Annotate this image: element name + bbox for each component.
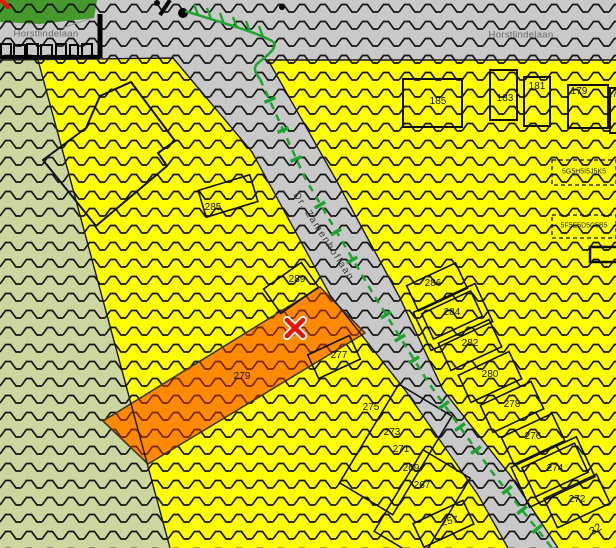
annotation-row2: 5F5E5D5C5B5 — [560, 223, 607, 230]
parcel-label-277: 277 — [331, 351, 348, 361]
parcel-label-282: 282 — [462, 339, 479, 349]
parcel-label-275: 275 — [363, 403, 380, 413]
map-canvas[interactable] — [0, 0, 616, 548]
parcel-label-181: 181 — [529, 82, 546, 92]
parcel-label-280: 280 — [482, 370, 499, 380]
parcel-label-289: 289 — [289, 275, 306, 285]
parcel-label-17x: 17 — [606, 90, 616, 100]
parcel-label-269: 269 — [403, 464, 420, 474]
parcel-label-278: 278 — [504, 400, 521, 410]
parcel-label-183: 183 — [497, 94, 514, 104]
parcel-label-273: 273 — [384, 428, 401, 438]
parcel-label-274: 274 — [547, 464, 564, 474]
tree-dot-icon — [279, 4, 285, 10]
parcel-label-284: 284 — [444, 308, 461, 318]
parcel-label-267: 267 — [414, 481, 431, 491]
parcel-label-185: 185 — [430, 97, 447, 107]
parcel-label-271: 271 — [393, 445, 410, 455]
parcel-label-286: 286 — [425, 279, 442, 289]
parcel-label-272: 272 — [569, 495, 586, 505]
location-marker-icon[interactable] — [287, 320, 303, 336]
map-viewport[interactable]: Horstlindelaan Horstlindelaan Dr. Zamenh… — [0, 0, 616, 548]
parcel-label-279: 279 — [234, 372, 251, 382]
tree-dot-icon — [178, 8, 188, 18]
street-label-horstlindelaan-left: Horstlindelaan — [14, 29, 79, 39]
tree-dot-icon — [154, 0, 160, 6]
parcel-label-179: 179 — [571, 87, 588, 97]
parcel-label-276: 276 — [525, 432, 542, 442]
parcel-label-285: 285 — [205, 203, 222, 213]
street-label-horstlindelaan-right: Horstlindelaan — [489, 30, 554, 40]
annotation-row1: 5G5H5I5J5K5 — [562, 169, 606, 176]
